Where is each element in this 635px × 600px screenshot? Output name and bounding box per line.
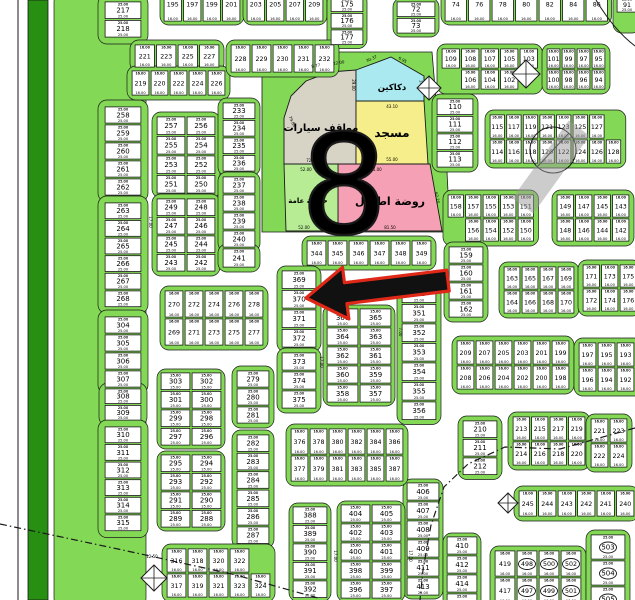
plot-dim: 25.00 <box>381 537 392 541</box>
plot-dim: 16.00 <box>234 550 245 554</box>
plot-dim: 25.00 <box>118 204 129 208</box>
plot-dim: 16.00 <box>579 213 590 217</box>
plot-number: 102 <box>503 77 515 84</box>
plot-dim: 16.00 <box>613 463 624 467</box>
plot-dim: 25.00 <box>418 553 429 557</box>
plot-dim: 25.00 <box>248 491 259 495</box>
plot-dim: 16.00 <box>161 63 172 67</box>
plot-dim: 16.00 <box>525 268 536 272</box>
facility-dim: 75.00 <box>370 167 382 172</box>
plot-number: 286 <box>246 513 260 521</box>
plot-number: 162 <box>459 305 472 313</box>
plot-dim: 25.00 <box>234 225 245 229</box>
plot-dim: 25.00 <box>234 196 245 200</box>
plot-number: 108 <box>464 56 476 63</box>
plot-dim: 16.00 <box>192 550 203 554</box>
plot-dim: 16.00 <box>562 512 573 516</box>
plot-dim: 25.00 <box>381 582 392 586</box>
plot-dim: 25.00 <box>248 509 259 513</box>
plot-dim: 25.00 <box>305 526 316 530</box>
plot-number: 94 <box>594 77 602 84</box>
plot-dim: 25.00 <box>201 511 212 515</box>
plot-dim: 16.00 <box>575 159 586 163</box>
plot-number: 205 <box>497 350 509 357</box>
plot-dim: 16.00 <box>479 342 490 346</box>
plot-dim: 16.00 <box>460 367 471 371</box>
plot-dim: 25.00 <box>118 173 129 177</box>
plot-dim: 16.00 <box>500 579 511 583</box>
plot-dim: 25.00 <box>234 121 245 125</box>
plot-dim: 16.00 <box>313 457 324 461</box>
plot-dim: 16.00 <box>594 463 605 467</box>
plot-dim: 16.00 <box>465 50 476 54</box>
plot-number: 387 <box>388 466 400 473</box>
plot-dim: 16.00 <box>560 220 571 224</box>
plot-dim: 25.00 <box>118 33 129 37</box>
plot-number: 406 <box>416 488 430 496</box>
plot-dim: 16.00 <box>249 292 260 296</box>
plot-dim: 16.00 <box>213 550 224 554</box>
plot-number: 239 <box>232 217 245 225</box>
plot-dim: 25.00 <box>248 528 259 532</box>
plot-number: 381 <box>331 466 343 473</box>
plot-number: 379 <box>312 466 324 473</box>
plot-dim: 25.00 <box>475 471 486 475</box>
plot-number: 195 <box>600 352 612 359</box>
plot-dim: 16.00 <box>566 552 577 556</box>
plot-dim: 16.00 <box>294 430 305 434</box>
plot-number: 412 <box>455 561 468 569</box>
plot-dim: 16.00 <box>135 91 146 95</box>
plot-dim: 16.00 <box>389 450 400 454</box>
plot-dim: 25.00 <box>418 560 429 564</box>
plot-dim: 16.00 <box>500 552 511 556</box>
plot-number: 369 <box>292 276 305 284</box>
plot-dim: 25.00 <box>461 266 472 270</box>
plot-dim: 16.00 <box>522 572 533 576</box>
plot-number: 294 <box>200 460 214 468</box>
plot-dim: 16.00 <box>486 196 497 200</box>
plot-dim: 25.00 <box>118 456 129 460</box>
plot-dim: 16.00 <box>525 159 536 163</box>
plot-number: 349 <box>415 250 427 257</box>
street-dim: 17.00 <box>408 550 413 562</box>
plot-dim: 16.00 <box>605 290 616 294</box>
plot-dim: 25.00 <box>418 484 429 488</box>
plot-dim: 25.00 <box>411 19 422 23</box>
plot-dim: 16.00 <box>572 418 583 422</box>
plot-dim: 25.00 <box>370 386 381 390</box>
plot-dim: 16.00 <box>235 46 246 50</box>
facility-dim: 52.00 <box>300 167 312 172</box>
plot-number: 74 <box>452 1 460 8</box>
plot-number: 204 <box>497 375 509 382</box>
plot-dim: 16.00 <box>468 237 479 241</box>
plot-dim: 16.00 <box>351 457 362 461</box>
plot-dim: 16.00 <box>416 261 427 265</box>
plot-dim: 25.00 <box>118 239 129 243</box>
plot-dim: 25.00 <box>461 259 472 263</box>
plot-number: 149 <box>559 203 571 210</box>
plot-dim: 16.00 <box>446 50 457 54</box>
facility-dim: 72.00 <box>306 158 318 163</box>
plot-dim: 16.00 <box>485 50 496 54</box>
plot-number: 146 <box>578 227 590 234</box>
plot-dim: 25.00 <box>457 576 468 580</box>
plot-dim: 25.00 <box>337 322 348 326</box>
plot-dim: 25.00 <box>414 338 425 342</box>
plot-dim: 25.00 <box>118 21 129 25</box>
plot-dim: 16.00 <box>498 385 509 389</box>
plot-number: 419 <box>499 561 511 568</box>
plot-dim: 25.00 <box>350 556 361 560</box>
plot-number: 413 <box>416 583 429 591</box>
plot-dim: 25.00 <box>414 344 425 348</box>
plot-number: 307 <box>116 375 129 383</box>
plot-dim: 16.00 <box>313 450 324 454</box>
plot-dim: 16.00 <box>451 196 462 200</box>
plot-number: 374 <box>292 377 306 385</box>
plot-dim: 16.00 <box>249 320 260 324</box>
plot-dim: 16.00 <box>332 457 343 461</box>
plot-dim: 16.00 <box>370 477 381 481</box>
plot-dim: 16.00 <box>535 443 546 447</box>
plot-dim: 25.00 <box>166 200 177 204</box>
plot-number: 176 <box>340 17 354 25</box>
plot-dim: 25.00 <box>166 170 177 174</box>
plot-dim: 16.00 <box>183 46 194 50</box>
plot-dim: 25.00 <box>418 503 429 507</box>
plot-number: 357 <box>369 390 382 398</box>
plot-dim: 16.00 <box>542 116 553 120</box>
plot-dim: 16.00 <box>209 292 220 296</box>
plot-dim: 25.00 <box>201 429 212 433</box>
plot-dim: 16.00 <box>605 283 616 287</box>
plot-dim: 25.00 <box>166 137 177 141</box>
plot-number: 399 <box>380 567 393 575</box>
plot-dim: 25.00 <box>234 139 245 143</box>
plot-dim: 25.00 <box>294 404 305 408</box>
plot-dim: 16.00 <box>582 344 593 348</box>
plot-dim: 25.00 <box>603 562 614 566</box>
plot-dim: 16.00 <box>192 568 203 572</box>
plot-number: 234 <box>232 125 246 133</box>
plot-number: 192 <box>619 377 631 384</box>
plot-dim: 16.00 <box>192 72 203 76</box>
plot-dim: 16.00 <box>525 116 536 120</box>
plot-dim: 25.00 <box>118 292 129 296</box>
plot-number: 268 <box>116 295 129 303</box>
plot-number: 208 <box>459 375 471 382</box>
plot-dim: 25.00 <box>370 348 381 352</box>
plot-dim: 16.00 <box>620 492 631 496</box>
plot-number: 317 <box>170 583 182 590</box>
plot-number: 322 <box>233 558 245 565</box>
plot-dim: 16.00 <box>578 85 589 89</box>
plot-dim: 16.00 <box>516 436 527 440</box>
plot-dim: 16.00 <box>234 575 245 579</box>
plot-dim: 25.00 <box>350 518 361 522</box>
plot-dim: 16.00 <box>416 242 427 246</box>
plot-dim: 25.00 <box>166 212 177 216</box>
plot-dim: 25.00 <box>170 511 181 515</box>
plot-number: 128 <box>607 149 619 156</box>
plot-number: 391 <box>303 567 316 575</box>
plot-dim: 16.00 <box>468 213 479 217</box>
plot-number: 152 <box>502 227 514 234</box>
plot-number: 275 <box>228 329 240 336</box>
plot-dim: 16.00 <box>592 116 603 120</box>
plot-dim: 25.00 <box>248 448 259 452</box>
plot-dim: 16.00 <box>154 72 165 76</box>
plot-number: 196 <box>581 377 593 384</box>
plot-dim: 16.00 <box>351 477 362 481</box>
plot-dim: 25.00 <box>381 506 392 510</box>
plot-number: 272 <box>188 301 200 308</box>
plot-number: 227 <box>203 53 215 60</box>
plot-number: 264 <box>116 225 130 233</box>
plot-dim: 16.00 <box>446 64 457 68</box>
plot-dim: 25.00 <box>294 366 305 370</box>
plot-number: 220 <box>153 80 165 87</box>
plot-number: 173 <box>604 273 616 280</box>
plot-dim: 16.00 <box>207 17 218 21</box>
plot-number: 499 <box>543 588 555 595</box>
plot-dim: 16.00 <box>578 50 589 54</box>
plot-dim: 25.00 <box>234 263 245 267</box>
plot-dim: 25.00 <box>118 155 129 159</box>
plot-dim: 25.00 <box>118 285 129 289</box>
plot-dim: 25.00 <box>118 274 129 278</box>
plot-dim: 25.00 <box>234 178 245 182</box>
plot-dim: 16.00 <box>492 141 503 145</box>
plot-number: 238 <box>232 199 245 207</box>
plot-dim: 16.00 <box>623 307 634 311</box>
plot-number: 378 <box>312 439 324 446</box>
plot-dim: 16.00 <box>582 387 593 391</box>
plot-dim: 25.00 <box>118 180 129 184</box>
plot-number: 281 <box>246 411 259 419</box>
plot-dim: 25.00 <box>603 581 614 585</box>
plot-dim: 16.00 <box>465 85 476 89</box>
plot-dim: 25.00 <box>166 157 177 161</box>
plot-dim: 16.00 <box>270 17 281 21</box>
plot-dim: 16.00 <box>492 116 503 120</box>
plot-number: 225 <box>182 53 194 60</box>
plot-dim: 16.00 <box>486 220 497 224</box>
plot-dim: 16.00 <box>542 134 553 138</box>
plot-dim: 16.00 <box>586 283 597 287</box>
plot-dim: 16.00 <box>213 575 224 579</box>
plot-number: 373 <box>292 358 305 366</box>
plot-dim: 25.00 <box>350 575 361 579</box>
plot-number: 252 <box>194 161 207 169</box>
plot-dim: 25.00 <box>370 341 381 345</box>
plot-dim: 25.00 <box>201 486 212 490</box>
plot-dim: 16.00 <box>517 342 528 346</box>
plot-number: 161 <box>459 287 472 295</box>
plot-number: 245 <box>164 241 177 249</box>
plot-dim: 16.00 <box>613 420 624 424</box>
plot-number: 200 <box>535 375 547 382</box>
plot-dim: 16.00 <box>616 196 627 200</box>
plot-dim: 16.00 <box>586 266 597 270</box>
plot-dim: 25.00 <box>118 250 129 254</box>
plot-number: 305 <box>116 339 129 347</box>
plot-dim: 16.00 <box>593 50 604 54</box>
plot-dim: 16.00 <box>543 268 554 272</box>
plot-dim: 16.00 <box>525 309 536 313</box>
plot-dim: 16.00 <box>173 91 184 95</box>
plot-dim: 25.00 <box>381 518 392 522</box>
plot-dim: 25.00 <box>294 330 305 334</box>
plot-number: 172 <box>585 297 597 304</box>
plot-dim: 16.00 <box>192 575 203 579</box>
plot-number: 169 <box>560 275 572 282</box>
plot-number: 266 <box>116 260 130 268</box>
plot-number: 249 <box>164 204 177 212</box>
plot-number: 211 <box>473 444 486 452</box>
plot-dim: 16.00 <box>504 85 515 89</box>
plot-dim: 25.00 <box>350 537 361 541</box>
plot-number: 100 <box>547 77 559 84</box>
plot-number: 101 <box>547 56 559 63</box>
plot-dim: 16.00 <box>277 68 288 72</box>
plot-number: 403 <box>380 529 393 537</box>
plot-dim: 16.00 <box>319 68 330 72</box>
plot-dim: 16.00 <box>536 385 547 389</box>
plot-197: 16.0016.00197 <box>184 0 201 21</box>
plot-dim: 16.00 <box>601 362 612 366</box>
plot-dim: 16.00 <box>189 341 200 345</box>
plot-dim: 16.00 <box>542 492 553 496</box>
plot-dim: 25.00 <box>170 374 181 378</box>
plot-dim: 16.00 <box>594 420 605 424</box>
plot-dim: 25.00 <box>196 131 207 135</box>
plot-dim: 16.00 <box>229 320 240 324</box>
plot-dim: 25.00 <box>170 474 181 478</box>
plot-number: 405 <box>380 510 393 518</box>
plot-number: 97 <box>579 56 587 63</box>
plot-dim: 25.00 <box>457 557 468 561</box>
plot-dim: 16.00 <box>561 285 572 289</box>
plot-dim: 25.00 <box>248 401 259 405</box>
plot-number: 72 <box>412 6 421 14</box>
plot-dim: 16.00 <box>313 430 324 434</box>
plot-dim: 16.00 <box>503 213 514 217</box>
plot-dim: 25.00 <box>166 237 177 241</box>
plot-dim: 16.00 <box>251 17 262 21</box>
plot-number: 315 <box>116 519 129 527</box>
plot-dim: 25.00 <box>248 419 259 423</box>
plot-dim: 16.00 <box>593 85 604 89</box>
plot-dim: 25.00 <box>337 379 348 383</box>
plot-number: 404 <box>349 510 363 518</box>
plot-number: 145 <box>596 203 608 210</box>
plot-number: 354 <box>412 368 426 376</box>
plot-dim: 25.00 <box>118 126 129 130</box>
plot-number: 215 <box>534 426 546 433</box>
plot-dim: 16.00 <box>542 512 553 516</box>
plot-number: 241 <box>600 501 612 508</box>
plot-number: 226 <box>210 80 222 87</box>
plot-number: 362 <box>336 352 349 360</box>
plot-number: 259 <box>116 129 129 137</box>
plot-number: 245 <box>522 501 534 508</box>
plot-dim: 16.00 <box>543 285 554 289</box>
plot-dim: 16.00 <box>256 68 267 72</box>
plot-dim: 25.00 <box>201 523 212 527</box>
plot-dim: 16.00 <box>536 360 547 364</box>
plot-number: 312 <box>116 466 129 474</box>
plot-dim: 25.00 <box>461 302 472 306</box>
plot-dim: 16.00 <box>555 367 566 371</box>
plot-number: 199 <box>206 1 218 8</box>
plot-dim: 25.00 <box>294 272 305 276</box>
plot-dim: 25.00 <box>201 456 212 460</box>
plot-number: 203 <box>250 1 262 8</box>
plot-number: 91 <box>623 2 631 9</box>
plot-dim: 25.00 <box>166 189 177 193</box>
plot-dim: 16.00 <box>460 360 471 364</box>
plot-dim: 16.00 <box>616 237 627 241</box>
plot-dim: 25.00 <box>414 364 425 368</box>
plot-dim: 16.00 <box>560 237 571 241</box>
plot-number: 261 <box>116 165 129 173</box>
plot-number: 116 <box>508 149 520 156</box>
plot-dim: 16.00 <box>616 220 627 224</box>
plot-dim: 16.00 <box>572 461 583 465</box>
plot-dim: 25.00 <box>201 474 212 478</box>
plot-dim: 25.00 <box>305 575 316 579</box>
plot-dim: 16.00 <box>560 213 571 217</box>
plot-dim: 16.00 <box>498 360 509 364</box>
plot-number: 105 <box>503 56 515 63</box>
plot-dim: 16.00 <box>492 134 503 138</box>
plot-dim: 16.00 <box>535 418 546 422</box>
plot-number: 84 <box>569 1 577 8</box>
plot-dim: 16.00 <box>204 63 215 67</box>
plot-number: 228 <box>234 56 246 63</box>
plot-number: 219 <box>571 426 583 433</box>
plot-number: 163 <box>506 275 518 282</box>
plot-dim: 16.00 <box>575 116 586 120</box>
plot-dim: 16.00 <box>620 362 631 366</box>
plot-dim: 25.00 <box>305 557 316 561</box>
plot-number: 284 <box>246 476 260 484</box>
plot-dim: 16.00 <box>555 360 566 364</box>
plot-dim: 16.00 <box>498 17 509 21</box>
plot-number: 243 <box>561 501 573 508</box>
street-dim: 17.00 <box>319 356 324 368</box>
plot-number: 250 <box>194 181 207 189</box>
plot-number: 104 <box>484 77 496 84</box>
plot-dim: 16.00 <box>544 552 555 556</box>
plot-dim: 16.00 <box>592 134 603 138</box>
plot-dim: 16.00 <box>154 91 165 95</box>
plot-number: 205 <box>269 1 281 8</box>
plot-dim: 16.00 <box>169 320 180 324</box>
plot-dim: 16.00 <box>485 71 496 75</box>
plot-number: 273 <box>208 329 220 336</box>
plot-dim: 25.00 <box>475 452 486 456</box>
plot-dim: 16.00 <box>509 159 520 163</box>
plot-dim: 25.00 <box>418 496 429 500</box>
plot-dim: 16.00 <box>503 196 514 200</box>
plot-dim: 25.00 <box>418 572 429 576</box>
plot-dim: 25.00 <box>234 150 245 154</box>
plot-175: 25.0025.00175 <box>331 0 363 12</box>
